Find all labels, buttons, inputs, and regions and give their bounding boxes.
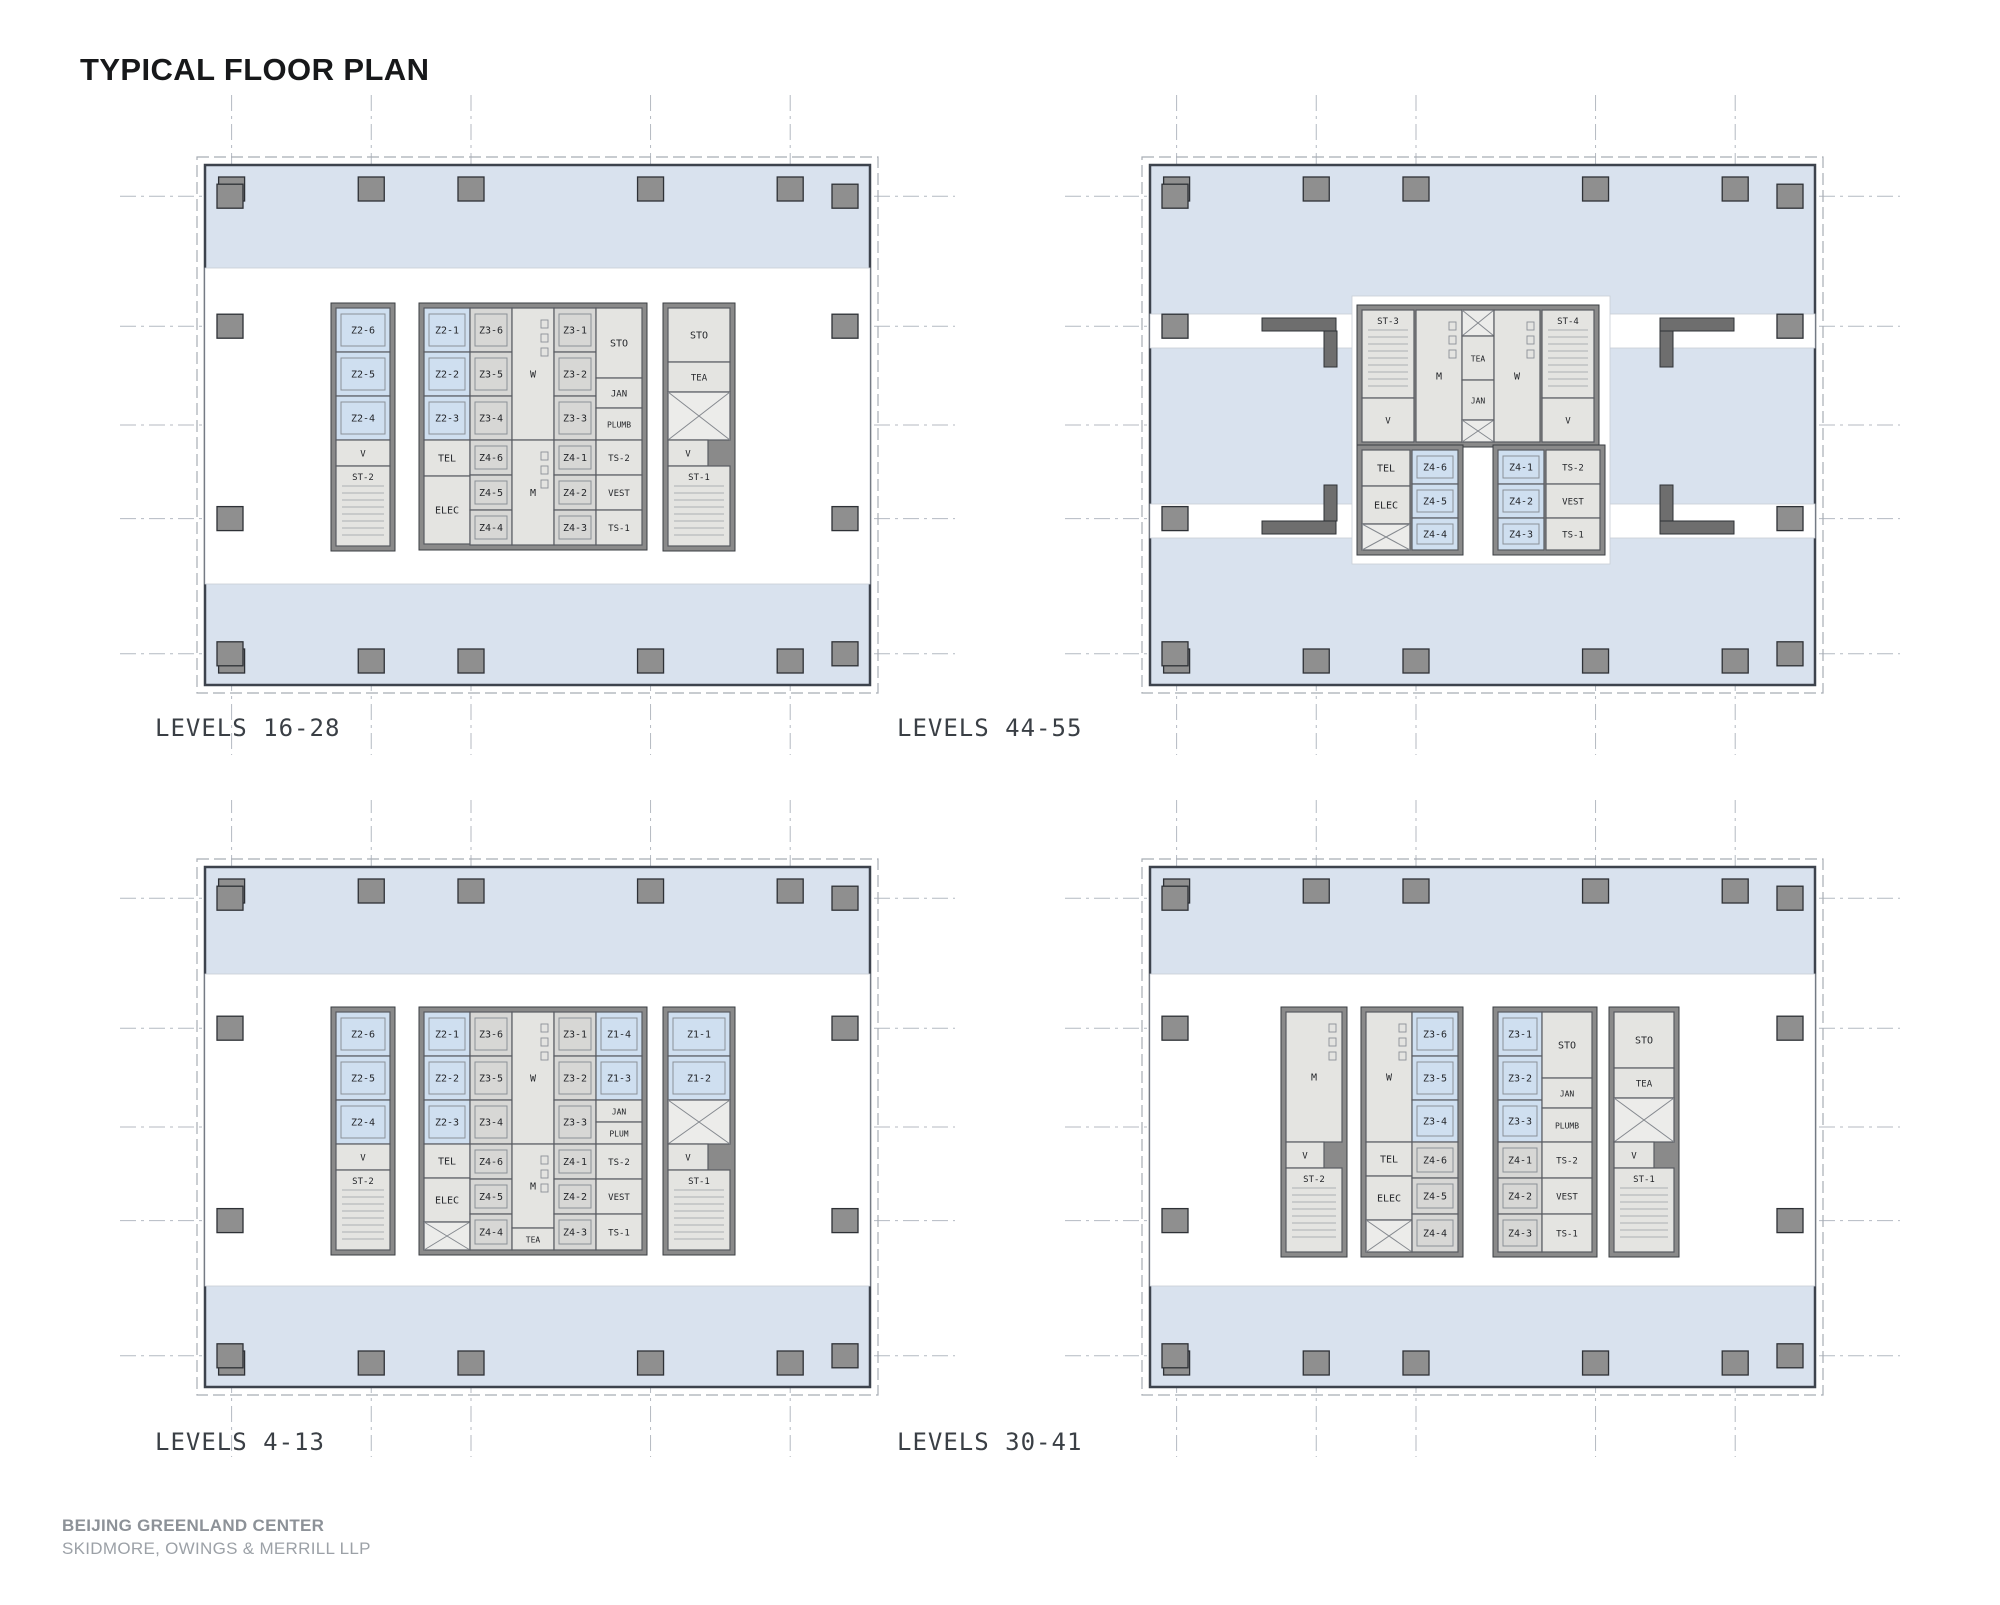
wing-wall — [1660, 521, 1734, 534]
column — [358, 177, 384, 201]
room-label: JAN — [1560, 1090, 1575, 1099]
room-label: Z3-3 — [1508, 1117, 1532, 1128]
room-label: Z4-3 — [563, 523, 587, 534]
room-label: VEST — [1562, 498, 1584, 508]
column — [217, 1344, 243, 1368]
room-label: TEA — [526, 1236, 541, 1245]
column — [1162, 1209, 1188, 1233]
room-label: TS-1 — [1562, 531, 1584, 541]
room-label: Z4-3 — [1508, 1229, 1532, 1240]
room-label: TEL — [1380, 1155, 1398, 1166]
room-label: Z4-4 — [1423, 1229, 1447, 1240]
room-label: ELEC — [435, 506, 459, 517]
column — [1403, 649, 1429, 673]
column — [1583, 177, 1609, 201]
firm-name: SKIDMORE, OWINGS & MERRILL LLP — [62, 1537, 371, 1560]
room-label: Z2-5 — [351, 1074, 375, 1085]
column — [638, 1351, 664, 1375]
room-label: Z2-5 — [351, 370, 375, 381]
floor-plan-top-right: ST-3VMTEAJANWST-4VTELELECZ4-6Z4-5Z4-4Z4-… — [1000, 0, 2000, 800]
room-label: Z4-1 — [1508, 1156, 1532, 1167]
room-label: V — [685, 450, 691, 460]
room-label: ST-3 — [1377, 317, 1399, 327]
wing-wall — [1262, 318, 1336, 331]
room-label: Z4-5 — [479, 1192, 503, 1203]
wing-wall — [1660, 331, 1673, 367]
room-label: Z2-6 — [351, 1030, 375, 1041]
floor-plan-drawing-levels-30-41: MVST-2WTELELECZ3-6Z3-5Z3-4Z4-6Z4-5Z4-4Z3… — [1000, 800, 2000, 1600]
column — [217, 184, 243, 208]
room-label: TS-1 — [608, 1229, 630, 1239]
room-label: Z2-4 — [351, 414, 375, 425]
floor-plan-drawing-levels-16-28: Z2-6Z2-5Z2-4VST-2Z2-1Z2-2Z2-3TELELECZ3-6… — [0, 0, 1000, 800]
column — [1777, 314, 1803, 338]
room-label: W — [1386, 1073, 1393, 1084]
column — [458, 649, 484, 673]
room-label: Z4-2 — [1508, 1192, 1532, 1203]
room-label: Z4-6 — [1423, 1156, 1447, 1167]
column — [217, 507, 243, 531]
room-label: V — [1385, 417, 1391, 427]
room-label: TS-2 — [1562, 464, 1584, 474]
room-label: Z2-2 — [435, 1074, 459, 1085]
room-label: TEL — [1377, 464, 1395, 475]
room-label: PLUMB — [607, 421, 631, 430]
room-label: VEST — [608, 489, 630, 499]
room-label: V — [685, 1154, 691, 1164]
column — [1403, 177, 1429, 201]
room-label: STO — [1558, 1041, 1576, 1052]
room-label: Z3-2 — [563, 1074, 587, 1085]
room-label: Z3-1 — [1508, 1030, 1532, 1041]
column — [458, 177, 484, 201]
sheet: { "title": "TYPICAL FLOOR PLAN", "footer… — [0, 0, 2000, 1600]
floor-plan-drawing-levels-4-13: Z2-6Z2-5Z2-4VST-2Z2-1Z2-2Z2-3TELELECZ3-6… — [0, 800, 1000, 1600]
column — [1403, 879, 1429, 903]
column — [217, 1016, 243, 1040]
column — [777, 1351, 803, 1375]
room-label: M — [1311, 1073, 1317, 1084]
room-label: Z2-3 — [435, 414, 459, 425]
column — [1303, 1351, 1329, 1375]
room-label: PLUMB — [1555, 1122, 1579, 1131]
room-label: JAN — [612, 1108, 627, 1117]
column — [1722, 879, 1748, 903]
column — [832, 642, 858, 666]
room-label: Z2-1 — [435, 326, 459, 337]
wing-wall — [1324, 331, 1337, 367]
column — [1303, 649, 1329, 673]
room-label: ST-2 — [352, 473, 374, 483]
column — [777, 879, 803, 903]
column — [217, 642, 243, 666]
room-label: Z4-4 — [479, 1228, 503, 1239]
room-label: TS-1 — [608, 524, 630, 534]
room-label: Z1-2 — [687, 1074, 711, 1085]
column — [1162, 184, 1188, 208]
column — [1777, 507, 1803, 531]
room-label: ST-2 — [1303, 1175, 1325, 1185]
column — [1583, 1351, 1609, 1375]
room-label: V — [1302, 1152, 1308, 1162]
room-label: Z4-6 — [479, 1157, 503, 1168]
room-label: ELEC — [1377, 1194, 1401, 1205]
room-label: Z2-3 — [435, 1118, 459, 1129]
room-label: Z4-2 — [563, 488, 587, 499]
room-label: TEL — [438, 454, 456, 465]
room-label: Z3-2 — [563, 370, 587, 381]
column — [638, 879, 664, 903]
room-label: Z4-3 — [1509, 530, 1533, 541]
room-label: Z3-2 — [1508, 1074, 1532, 1085]
room-label: JAN — [611, 390, 627, 400]
room-label: W — [530, 1074, 537, 1085]
room-label: ST-1 — [1633, 1175, 1655, 1185]
column — [1777, 1344, 1803, 1368]
room-label: Z2-2 — [435, 370, 459, 381]
floor-plan-bottom-right: MVST-2WTELELECZ3-6Z3-5Z3-4Z4-6Z4-5Z4-4Z3… — [1000, 800, 2000, 1600]
room-label: ST-1 — [688, 1177, 710, 1187]
room-label: Z4-4 — [1423, 530, 1447, 541]
room-label: TS-1 — [1556, 1230, 1578, 1240]
room-label: Z4-6 — [1423, 463, 1447, 474]
room-label: Z1-3 — [607, 1074, 631, 1085]
plan-level-label: LEVELS 16-28 — [155, 714, 340, 742]
column — [1777, 1209, 1803, 1233]
room-label: V — [360, 450, 366, 460]
room-label: Z4-1 — [563, 1157, 587, 1168]
room-label: Z4-5 — [479, 488, 503, 499]
room-label: W — [1514, 372, 1521, 383]
room-label: Z2-6 — [351, 326, 375, 337]
room-label: TS-2 — [1556, 1157, 1578, 1167]
room-label: Z4-5 — [1423, 1192, 1447, 1203]
column — [458, 879, 484, 903]
column — [832, 1209, 858, 1233]
room-label: ST-4 — [1557, 317, 1579, 327]
room-label: M — [530, 488, 536, 499]
floor-plan-bottom-left: Z2-6Z2-5Z2-4VST-2Z2-1Z2-2Z2-3TELELECZ3-6… — [0, 800, 1000, 1600]
column — [1777, 1016, 1803, 1040]
column — [1583, 649, 1609, 673]
column — [1303, 177, 1329, 201]
column — [832, 507, 858, 531]
room-label: Z4-5 — [1423, 497, 1447, 508]
room-label: Z3-1 — [563, 326, 587, 337]
room-label: STO — [610, 339, 628, 350]
column — [358, 879, 384, 903]
room-label: TEA — [1471, 355, 1486, 364]
column — [638, 177, 664, 201]
column — [777, 649, 803, 673]
floor-plan-drawing-levels-44-55: ST-3VMTEAJANWST-4VTELELECZ4-6Z4-5Z4-4Z4-… — [1000, 0, 2000, 800]
room-label: VEST — [608, 1193, 630, 1203]
room-label: Z3-3 — [563, 414, 587, 425]
room-label: VEST — [1556, 1193, 1578, 1203]
column — [1162, 314, 1188, 338]
column — [358, 1351, 384, 1375]
room-label: W — [530, 370, 537, 381]
room-label: Z3-5 — [479, 1074, 503, 1085]
room-label: TEA — [1636, 1080, 1653, 1090]
room-label: V — [1631, 1152, 1637, 1162]
column — [1403, 1351, 1429, 1375]
column — [832, 1016, 858, 1040]
room-label: Z4-1 — [563, 453, 587, 464]
plan-level-label: LEVELS 4-13 — [155, 1428, 325, 1456]
column — [1162, 642, 1188, 666]
column — [1722, 649, 1748, 673]
room-label: Z3-4 — [1423, 1117, 1447, 1128]
column — [217, 886, 243, 910]
room-label: ST-1 — [688, 473, 710, 483]
plan-level-label: LEVELS 30-41 — [897, 1428, 1082, 1456]
column — [1777, 886, 1803, 910]
column — [458, 1351, 484, 1375]
wing-wall — [1262, 521, 1336, 534]
room-label: Z3-5 — [1423, 1074, 1447, 1085]
column — [832, 184, 858, 208]
room-label: Z4-2 — [563, 1192, 587, 1203]
room-label: Z4-4 — [479, 523, 503, 534]
column — [358, 649, 384, 673]
column — [1162, 1344, 1188, 1368]
room-label: ELEC — [1374, 501, 1398, 512]
room-label: Z3-3 — [563, 1118, 587, 1129]
column — [1162, 1016, 1188, 1040]
room-label: ELEC — [435, 1196, 459, 1207]
room-label: Z3-6 — [1423, 1030, 1447, 1041]
room-label: Z4-3 — [563, 1228, 587, 1239]
room-label: JAN — [1471, 397, 1486, 406]
room-label: M — [530, 1182, 536, 1193]
room-label: TS-2 — [608, 454, 630, 464]
room-label: Z1-1 — [687, 1030, 711, 1041]
column — [217, 1209, 243, 1233]
room-label: Z3-6 — [479, 1030, 503, 1041]
title-block: BEIJING GREENLAND CENTER SKIDMORE, OWING… — [62, 1514, 371, 1560]
plan-level-label: LEVELS 44-55 — [897, 714, 1082, 742]
column — [1722, 177, 1748, 201]
room-label: Z2-1 — [435, 1030, 459, 1041]
corridor — [1150, 974, 1815, 1286]
room-label: TEL — [438, 1157, 456, 1168]
room-label: Z3-5 — [479, 370, 503, 381]
room-label: Z1-4 — [607, 1030, 631, 1041]
column — [638, 649, 664, 673]
room-label: Z3-6 — [479, 326, 503, 337]
room-label: PLUM — [609, 1130, 628, 1139]
room-label: Z4-1 — [1509, 463, 1533, 474]
floor-plan-top-left: Z2-6Z2-5Z2-4VST-2Z2-1Z2-2Z2-3TELELECZ3-6… — [0, 0, 1000, 800]
column — [832, 314, 858, 338]
wing-wall — [1660, 485, 1673, 521]
room-label: STO — [690, 331, 708, 342]
column — [1722, 1351, 1748, 1375]
project-name: BEIJING GREENLAND CENTER — [62, 1514, 371, 1537]
column — [1162, 886, 1188, 910]
room-label: Z2-4 — [351, 1118, 375, 1129]
room-label: STO — [1635, 1036, 1653, 1047]
room-label: V — [360, 1154, 366, 1164]
room-label: ST-2 — [352, 1177, 374, 1187]
column — [1777, 642, 1803, 666]
column — [1162, 507, 1188, 531]
column — [832, 886, 858, 910]
room-label: M — [1436, 372, 1442, 383]
room-label: TS-2 — [608, 1158, 630, 1168]
room-label: Z3-4 — [479, 1118, 503, 1129]
wing-wall — [1324, 485, 1337, 521]
room-label: Z4-6 — [479, 453, 503, 464]
column — [217, 314, 243, 338]
room-label: TEA — [691, 374, 708, 384]
room-label: V — [1565, 417, 1571, 427]
column — [1777, 184, 1803, 208]
room-label: Z3-4 — [479, 414, 503, 425]
room-label: Z3-1 — [563, 1030, 587, 1041]
column — [1583, 879, 1609, 903]
column — [1303, 879, 1329, 903]
column — [832, 1344, 858, 1368]
wing-wall — [1660, 318, 1734, 331]
column — [777, 177, 803, 201]
room-label: Z4-2 — [1509, 497, 1533, 508]
